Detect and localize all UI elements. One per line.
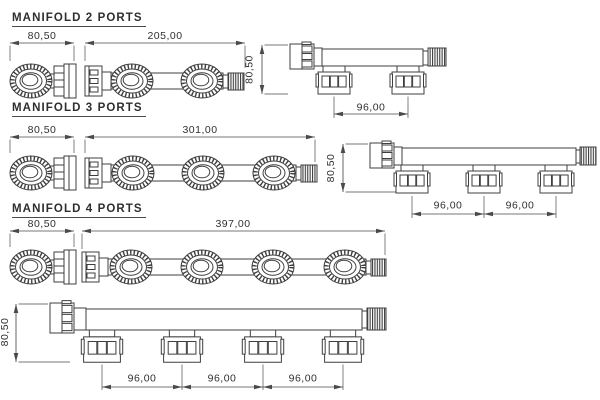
dim-label: 397,00: [215, 218, 250, 230]
drawing-sheet: 80,50 205,00 80,50 96,00: [0, 0, 600, 400]
section-title-manifold-3-ports: MANIFOLD 3 PORTS: [12, 102, 146, 117]
dim-label: 96,00: [289, 373, 318, 385]
dim-label: 96,00: [208, 373, 237, 385]
manifold-4-section: 80,50 397,00 80,50 96,00 96,00 96,00: [0, 218, 386, 390]
manifold-2-top-view: [85, 64, 244, 98]
section-title-manifold-2-ports: MANIFOLD 2 PORTS: [12, 12, 146, 27]
dim-4-port-spacing: 96,00 96,00 96,00: [102, 365, 343, 391]
dim-3-port-spacing: 96,00 96,00: [412, 196, 556, 218]
manifold-2-end-view: [10, 64, 76, 98]
section-title-manifold-4-ports: MANIFOLD 4 PORTS: [12, 203, 146, 218]
manifold-4-side-view: [50, 301, 386, 363]
manifold-4-end-view: [10, 250, 76, 284]
dim-2-height: 80,50: [244, 45, 289, 94]
dim-label: 80,50: [325, 154, 337, 183]
manifold-3-side-view: [370, 141, 596, 193]
dim-label: 80,50: [28, 124, 57, 136]
dim-label: 80,50: [28, 218, 57, 230]
dim-label: 80,50: [244, 55, 256, 84]
manifold-3-end-view: [10, 156, 76, 190]
manifold-3-top-view: [85, 156, 317, 190]
dim-label: 96,00: [506, 200, 535, 212]
dim-label: 80,50: [0, 318, 11, 347]
dim-2-end-width: 80,50: [10, 30, 74, 61]
manifold-2-side-view: [290, 42, 446, 94]
dim-2-length: 205,00: [85, 30, 245, 68]
dim-label: 80,50: [28, 30, 57, 42]
dim-2-port-spacing: 96,00: [334, 97, 408, 119]
dim-3-end-width: 80,50: [10, 124, 74, 153]
drawing-canvas: 80,50 205,00 80,50 96,00: [0, 0, 600, 400]
dim-label: 96,00: [357, 102, 386, 114]
dim-label: 96,00: [434, 200, 463, 212]
manifold-4-top-view: [82, 250, 386, 284]
dim-4-length: 397,00: [82, 218, 385, 255]
dim-label: 96,00: [128, 373, 157, 385]
dim-4-end-width: 80,50: [10, 218, 74, 247]
dim-label: 205,00: [147, 30, 182, 42]
dim-label: 301,00: [182, 124, 217, 136]
